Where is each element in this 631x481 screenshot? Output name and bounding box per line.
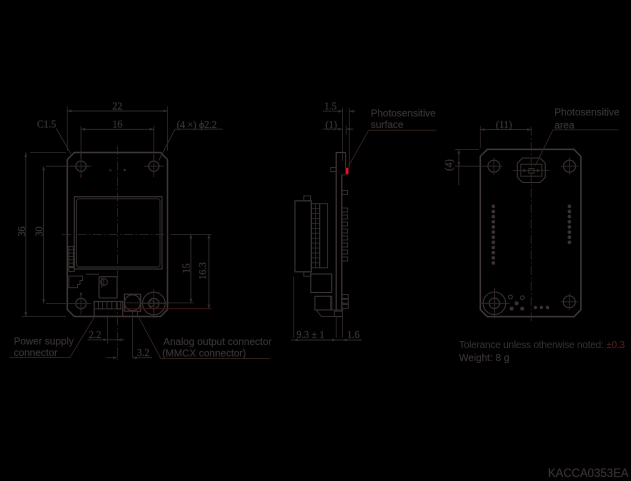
svg-text:9.3 ± 1: 9.3 ± 1 <box>297 330 325 341</box>
svg-text:16.3: 16.3 <box>198 262 209 280</box>
svg-text:Power supply: Power supply <box>14 337 74 348</box>
svg-text:1.6: 1.6 <box>347 330 360 341</box>
svg-text:KACCA0353EA: KACCA0353EA <box>548 468 629 480</box>
svg-text:surface: surface <box>371 120 404 131</box>
svg-text:36: 36 <box>17 227 28 237</box>
svg-text:(11): (11) <box>496 120 512 131</box>
svg-text:1.5: 1.5 <box>324 102 337 113</box>
svg-text:C1.5: C1.5 <box>37 120 56 131</box>
svg-text:15: 15 <box>181 263 192 273</box>
svg-text:(1): (1) <box>325 120 337 131</box>
svg-text:2.2: 2.2 <box>89 330 102 341</box>
svg-text:Analog output connector: Analog output connector <box>163 337 272 348</box>
svg-text:Tolerance unless otherwise not: Tolerance unless otherwise noted: ±0.3 <box>459 340 625 351</box>
svg-text:16: 16 <box>112 120 122 131</box>
svg-text:Photosensitive: Photosensitive <box>554 107 619 118</box>
svg-text:Weight: 8 g: Weight: 8 g <box>459 353 509 364</box>
svg-text:22: 22 <box>112 101 122 112</box>
svg-text:Photosensitive: Photosensitive <box>371 108 436 119</box>
svg-text:(4): (4) <box>444 159 455 171</box>
svg-text:(MMCX connector): (MMCX connector) <box>162 348 246 359</box>
svg-text:30: 30 <box>35 227 46 237</box>
svg-text:3.2: 3.2 <box>137 348 150 359</box>
